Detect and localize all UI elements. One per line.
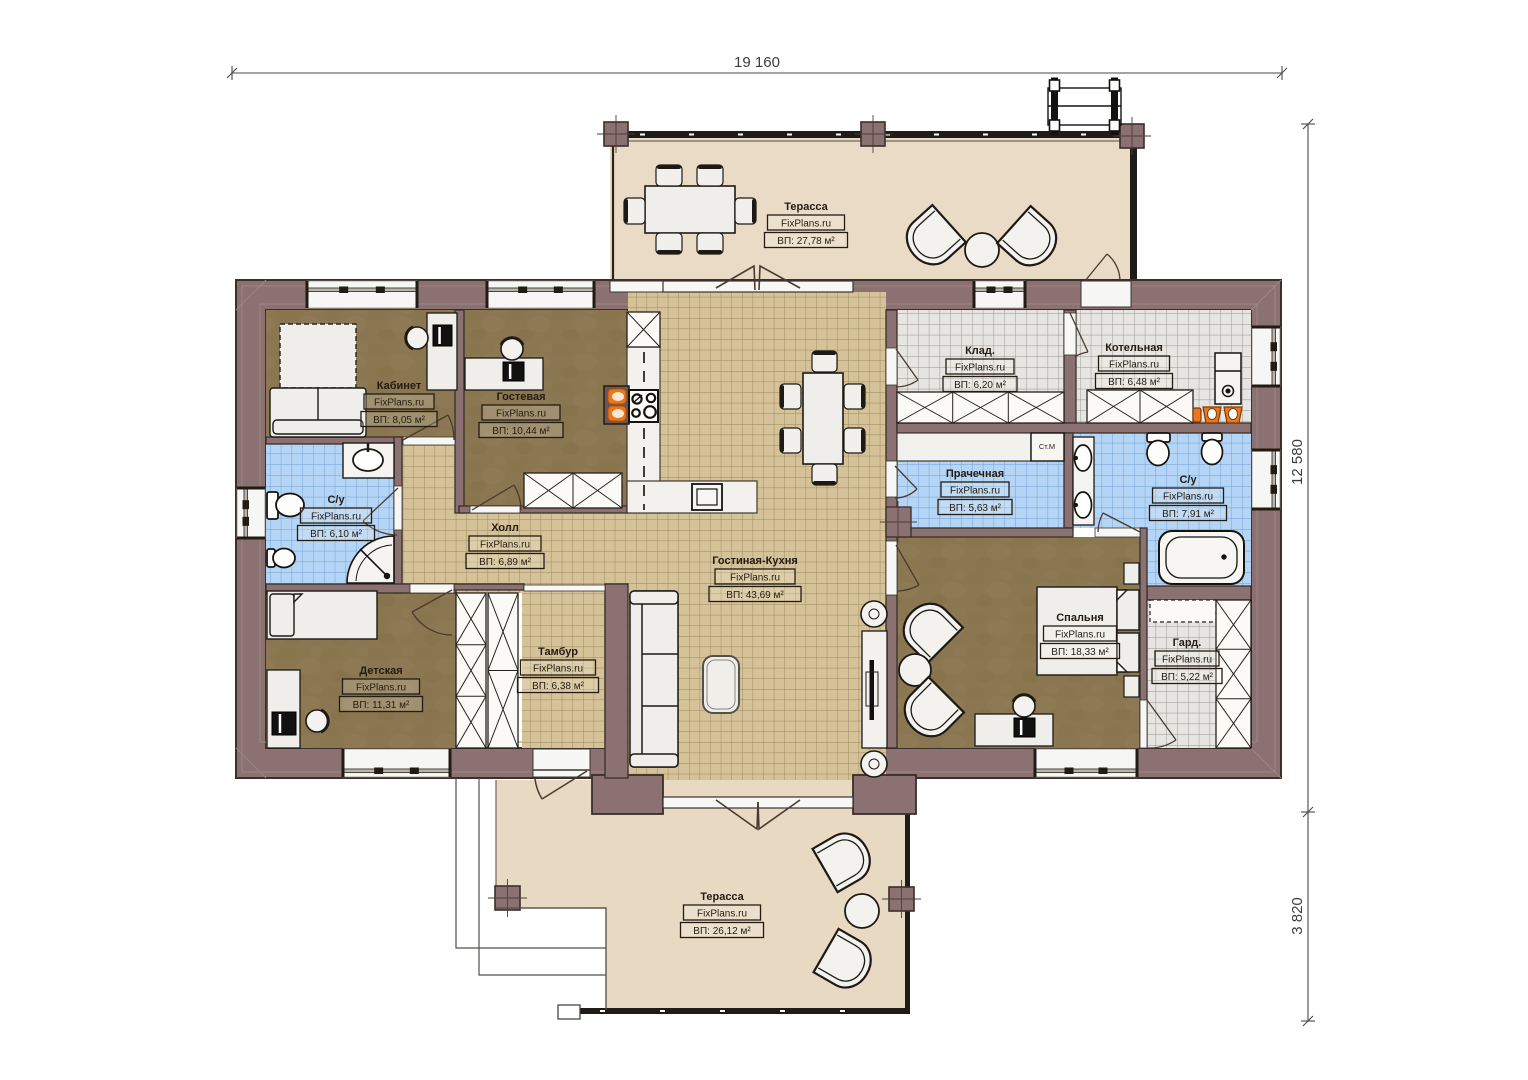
svg-text:ВП: 5,22 м²: ВП: 5,22 м² — [1161, 672, 1214, 683]
svg-text:Детская: Детская — [359, 665, 402, 677]
svg-text:FixPlans.ru: FixPlans.ru — [730, 573, 780, 584]
svg-text:FixPlans.ru: FixPlans.ru — [480, 540, 530, 551]
svg-text:ВП: 10,44 м²: ВП: 10,44 м² — [492, 426, 550, 437]
svg-text:Ст.М: Ст.М — [1039, 442, 1055, 451]
svg-text:Терасса: Терасса — [700, 891, 744, 903]
svg-text:FixPlans.ru: FixPlans.ru — [356, 683, 406, 694]
svg-text:FixPlans.ru: FixPlans.ru — [1163, 492, 1213, 503]
svg-text:Клад.: Клад. — [965, 345, 995, 357]
svg-text:Холл: Холл — [491, 522, 519, 534]
svg-text:12 580: 12 580 — [1289, 439, 1306, 485]
svg-text:FixPlans.ru: FixPlans.ru — [533, 664, 583, 675]
svg-text:Тамбур: Тамбур — [538, 646, 578, 658]
svg-text:FixPlans.ru: FixPlans.ru — [496, 409, 546, 420]
svg-text:ВП: 26,12 м²: ВП: 26,12 м² — [693, 926, 751, 937]
svg-text:С/у: С/у — [327, 494, 345, 506]
svg-text:3 820: 3 820 — [1289, 897, 1306, 935]
svg-text:FixPlans.ru: FixPlans.ru — [374, 398, 424, 409]
svg-text:Гостевая: Гостевая — [496, 391, 545, 403]
svg-text:FixPlans.ru: FixPlans.ru — [955, 363, 1005, 374]
svg-text:ВП: 6,89 м²: ВП: 6,89 м² — [479, 557, 532, 568]
svg-text:Кабинет: Кабинет — [377, 380, 422, 392]
svg-text:С/у: С/у — [1179, 474, 1197, 486]
svg-text:FixPlans.ru: FixPlans.ru — [1109, 360, 1159, 371]
svg-text:Гостиная-Кухня: Гостиная-Кухня — [712, 555, 798, 567]
svg-text:ВП: 8,05 м²: ВП: 8,05 м² — [373, 415, 426, 426]
svg-text:ВП: 18,33 м²: ВП: 18,33 м² — [1051, 647, 1109, 658]
svg-text:Прачечная: Прачечная — [946, 468, 1004, 480]
svg-text:FixPlans.ru: FixPlans.ru — [950, 486, 1000, 497]
svg-text:ВП: 11,31 м²: ВП: 11,31 м² — [353, 700, 410, 711]
svg-text:Терасса: Терасса — [784, 201, 828, 213]
svg-text:ВП: 5,63 м²: ВП: 5,63 м² — [949, 503, 1002, 514]
svg-text:ВП: 27,78 м²: ВП: 27,78 м² — [777, 236, 835, 247]
svg-text:Спальня: Спальня — [1056, 612, 1104, 624]
svg-text:ВП: 7,91 м²: ВП: 7,91 м² — [1162, 509, 1215, 520]
svg-text:Гард.: Гард. — [1173, 637, 1202, 649]
svg-text:FixPlans.ru: FixPlans.ru — [311, 512, 361, 523]
svg-text:19 160: 19 160 — [734, 54, 780, 71]
svg-text:ВП: 43,69 м²: ВП: 43,69 м² — [726, 590, 784, 601]
svg-text:FixPlans.ru: FixPlans.ru — [1055, 630, 1105, 641]
svg-text:ВП: 6,48 м²: ВП: 6,48 м² — [1108, 377, 1161, 388]
svg-text:FixPlans.ru: FixPlans.ru — [697, 909, 747, 920]
svg-text:FixPlans.ru: FixPlans.ru — [781, 219, 831, 230]
svg-text:ВП: 6,20 м²: ВП: 6,20 м² — [954, 380, 1007, 391]
svg-text:Котельная: Котельная — [1105, 342, 1163, 354]
svg-text:ВП: 6,10 м²: ВП: 6,10 м² — [310, 529, 363, 540]
svg-text:ВП: 6,38 м²: ВП: 6,38 м² — [532, 681, 585, 692]
svg-text:FixPlans.ru: FixPlans.ru — [1162, 655, 1212, 666]
